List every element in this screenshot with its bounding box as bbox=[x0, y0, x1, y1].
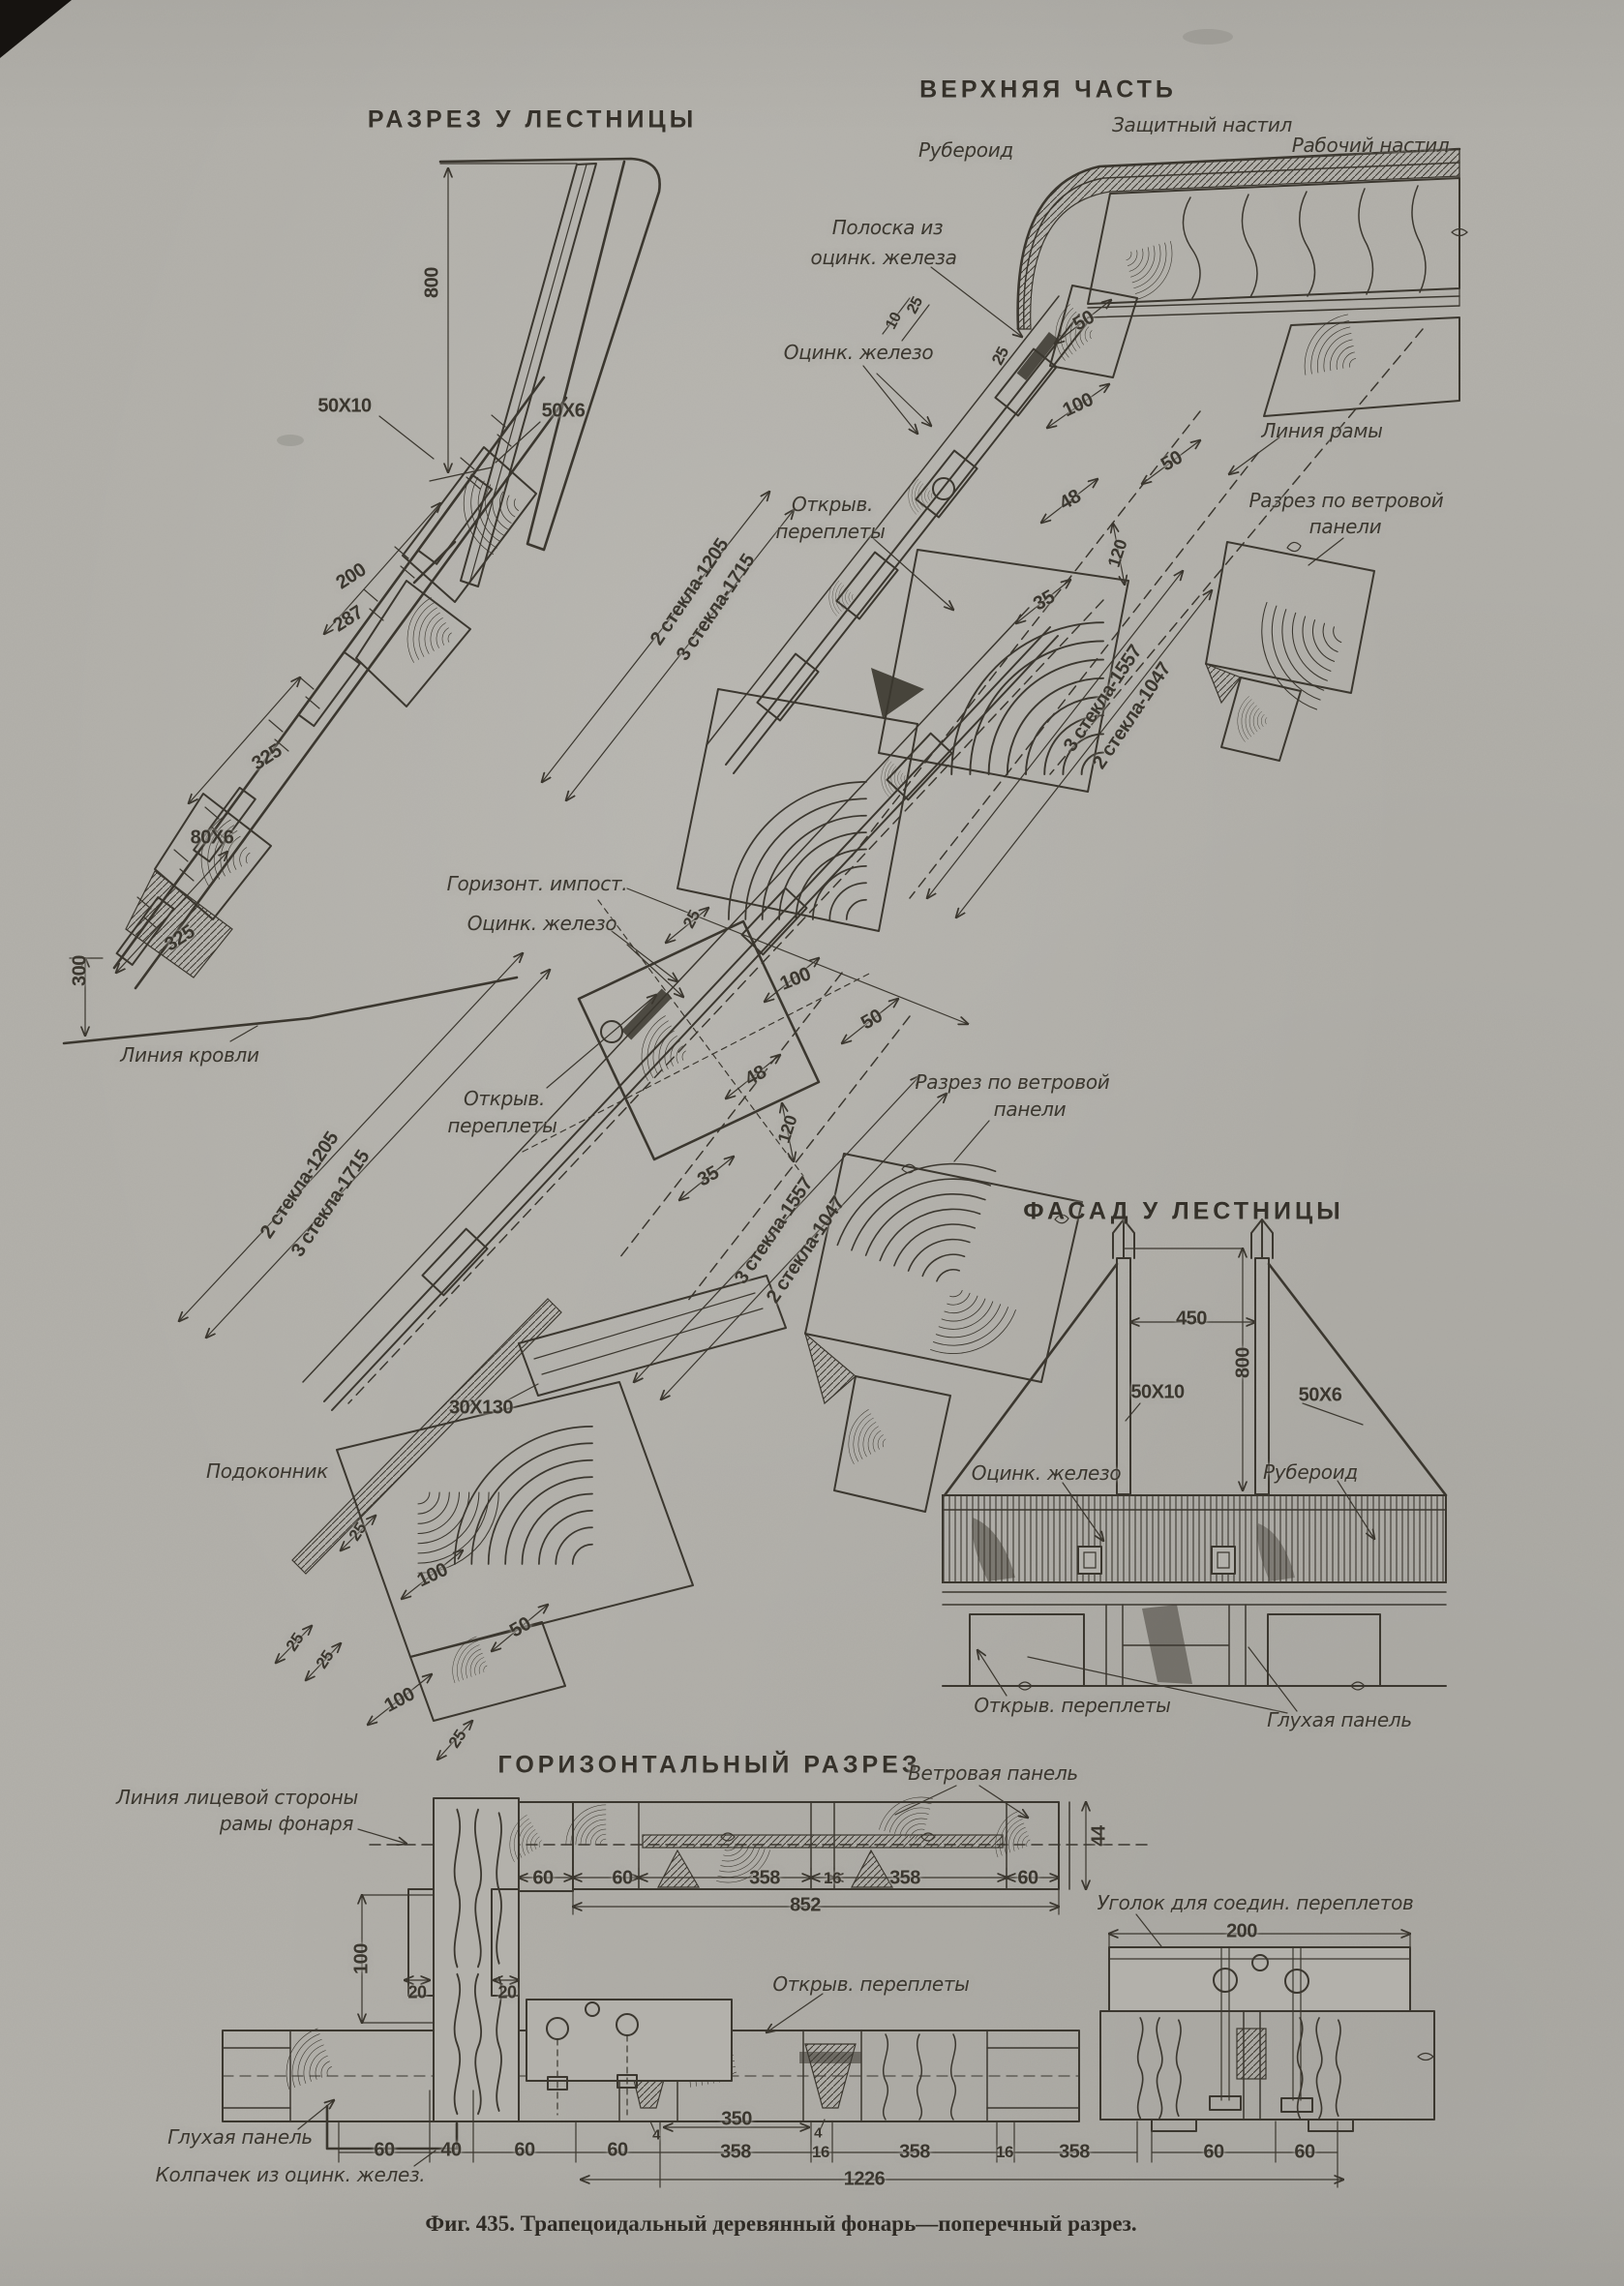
dim-358-r1b: 358 bbox=[889, 1868, 920, 1890]
label-opening-sash-mid-1: Открыв. bbox=[464, 1087, 545, 1110]
size-80x6-left: 80Х6 bbox=[191, 827, 234, 850]
label-galv-iron-top: Оцинк. железо bbox=[784, 341, 934, 364]
dim-100-corner: 100 bbox=[351, 1943, 374, 1974]
scanned-drawing-page: .s{stroke:#3b372f;fill:none;stroke-width… bbox=[0, 0, 1624, 2286]
size-30x130: 30X130 bbox=[449, 1398, 513, 1420]
dim-10-top: 10 bbox=[883, 310, 906, 332]
label-galv-iron-mid: Оцинк. железо bbox=[467, 912, 617, 935]
dim-25-sill-b: 25 bbox=[283, 1630, 309, 1655]
dim-120-mid: 120 bbox=[774, 1113, 802, 1146]
dim-60-r1c: 60 bbox=[1017, 1868, 1038, 1890]
dim-25-sill-c: 25 bbox=[313, 1647, 339, 1672]
dim-852: 852 bbox=[790, 1895, 821, 1917]
dim-50-sill: 50 bbox=[506, 1613, 535, 1643]
dim-100-sill-a: 100 bbox=[414, 1559, 452, 1592]
label-strip-2: оцинк. железа bbox=[810, 246, 956, 269]
dim-120-top: 120 bbox=[1104, 537, 1132, 570]
dim-48-mid: 48 bbox=[741, 1062, 770, 1092]
label-blind-panel-facade: Глухая панель bbox=[1267, 1708, 1412, 1731]
label-frame-line: Линия рамы bbox=[1261, 419, 1382, 442]
label-strip-1: Полоска из bbox=[832, 216, 944, 239]
label-roof-line: Линия кровли bbox=[120, 1043, 258, 1067]
size-50x6-left: 50X6 bbox=[542, 401, 586, 423]
label-ruberoid-facade: Рубероид bbox=[1263, 1460, 1358, 1484]
dim-25-top-a: 25 bbox=[904, 294, 927, 316]
title-horizontal-section: ГОРИЗОНТАЛЬНЫЙ РАЗРЕЗ bbox=[498, 1752, 921, 1780]
dim-60-r2b: 60 bbox=[514, 2140, 534, 2162]
dim-200-left: 200 bbox=[332, 559, 370, 595]
dim-35-mid: 35 bbox=[694, 1162, 723, 1192]
label-cap: Колпачек из оцинк. желез. bbox=[156, 2163, 426, 2186]
figure-caption: Фиг. 435. Трапецоидальный деревянный фон… bbox=[425, 2211, 1136, 2237]
size-50x10-facade: 50X10 bbox=[1130, 1382, 1184, 1404]
label-opening-sash-mid-2: переплеты bbox=[447, 1114, 556, 1137]
dim-200-angle: 200 bbox=[1226, 1921, 1257, 1943]
label-ruberoid-top: Рубероид bbox=[918, 138, 1013, 162]
dim-35-top: 35 bbox=[1030, 587, 1059, 617]
dim-358-r2a: 358 bbox=[720, 2142, 751, 2164]
dim-325-lower: 325 bbox=[161, 921, 198, 957]
label-wind-panel-horiz: Ветровая панель bbox=[908, 1761, 1078, 1785]
dim-350: 350 bbox=[721, 2109, 752, 2131]
label-horiz-impost: Горизонт. импост. bbox=[447, 872, 628, 895]
label-wind-panel-mid-1: Разрез по ветровой bbox=[916, 1070, 1110, 1094]
dim-60-r2a: 60 bbox=[374, 2140, 394, 2162]
label-wind-panel-top-2: панели bbox=[1309, 515, 1382, 538]
dim-60-r2d: 60 bbox=[1203, 2142, 1223, 2164]
dim-40: 40 bbox=[440, 2140, 461, 2162]
dim-325-upper: 325 bbox=[248, 740, 286, 776]
title-upper-part: ВЕРХНЯЯ ЧАСТЬ bbox=[919, 76, 1177, 105]
dim-450: 450 bbox=[1176, 1308, 1207, 1331]
dim-60-r2e: 60 bbox=[1294, 2142, 1314, 2164]
size-50x10-left: 50X10 bbox=[317, 396, 371, 418]
dim-25-top-b: 25 bbox=[988, 344, 1013, 368]
dim-16-r2b: 16 bbox=[996, 2143, 1013, 2162]
label-opening-sash-top-2: переплеты bbox=[775, 520, 885, 543]
label-wind-panel-top-1: Разрез по ветровой bbox=[1249, 489, 1444, 512]
dim-44: 44 bbox=[1089, 1825, 1111, 1846]
title-facade-at-stairs: ФАСАД У ЛЕСТНИЦЫ bbox=[1023, 1198, 1344, 1226]
dim-100-top: 100 bbox=[1060, 389, 1098, 422]
dim-287-left: 287 bbox=[329, 602, 367, 638]
dim-800-left: 800 bbox=[422, 267, 444, 298]
dim-60-r1b: 60 bbox=[612, 1868, 632, 1890]
dim-20-a: 20 bbox=[407, 1983, 426, 2003]
dim-50-top-a: 50 bbox=[1069, 307, 1098, 337]
dim-800-facade: 800 bbox=[1233, 1347, 1255, 1378]
label-galv-iron-facade: Оцинк. железо bbox=[972, 1461, 1122, 1485]
label-sill: Подоконник bbox=[206, 1459, 328, 1483]
dim-25-sill-a: 25 bbox=[346, 1519, 372, 1545]
dim-358-r2b: 358 bbox=[899, 2142, 930, 2164]
dim-25-mid: 25 bbox=[679, 907, 705, 931]
label-blind-panel-horiz: Глухая панель bbox=[167, 2125, 313, 2149]
dim-358-r2c: 358 bbox=[1059, 2142, 1090, 2164]
label-angle-bar: Уголок для соедин. переплетов bbox=[1097, 1891, 1413, 1914]
title-section-at-stairs: РАЗРЕЗ У ЛЕСТНИЦЫ bbox=[368, 106, 697, 135]
label-wind-panel-mid-2: панели bbox=[994, 1098, 1067, 1121]
dim-358-r1a: 358 bbox=[749, 1868, 780, 1890]
dim-300-left: 300 bbox=[70, 955, 92, 986]
dim-1226: 1226 bbox=[844, 2169, 886, 2191]
dim-100-mid-a: 100 bbox=[777, 963, 814, 995]
label-opening-sash-horiz: Открыв. переплеты bbox=[772, 1972, 969, 1996]
dim-4-a: 4 bbox=[652, 2127, 660, 2144]
label-working-deck: Рабочий настил bbox=[1292, 134, 1450, 157]
dim-60-r1a: 60 bbox=[532, 1868, 553, 1890]
label-face-line-2: рамы фонаря bbox=[220, 1812, 353, 1835]
dim-25-sill-d: 25 bbox=[445, 1727, 471, 1752]
dim-16-r1: 16 bbox=[824, 1869, 841, 1888]
dim-4-b: 4 bbox=[814, 2125, 822, 2142]
dim-50-top-b: 50 bbox=[1158, 447, 1187, 477]
dim-60-r2c: 60 bbox=[607, 2140, 627, 2162]
label-protective-deck: Защитный настил bbox=[1112, 113, 1292, 136]
label-opening-sash-top-1: Открыв. bbox=[792, 493, 873, 516]
dim-16-r2a: 16 bbox=[812, 2143, 829, 2162]
annotation-layer: РАЗРЕЗ У ЛЕСТНИЦЫ ВЕРХНЯЯ ЧАСТЬ ФАСАД У … bbox=[0, 0, 1624, 2286]
dim-100-sill-b: 100 bbox=[381, 1683, 419, 1717]
dim-50-mid-a: 50 bbox=[857, 1006, 887, 1036]
dim-48-top: 48 bbox=[1056, 486, 1085, 516]
label-face-line-1: Линия лицевой стороны bbox=[116, 1786, 358, 1809]
label-opening-sash-facade: Открыв. переплеты bbox=[974, 1694, 1170, 1717]
size-50x6-facade: 50X6 bbox=[1299, 1385, 1342, 1407]
dim-20-b: 20 bbox=[497, 1983, 516, 2003]
